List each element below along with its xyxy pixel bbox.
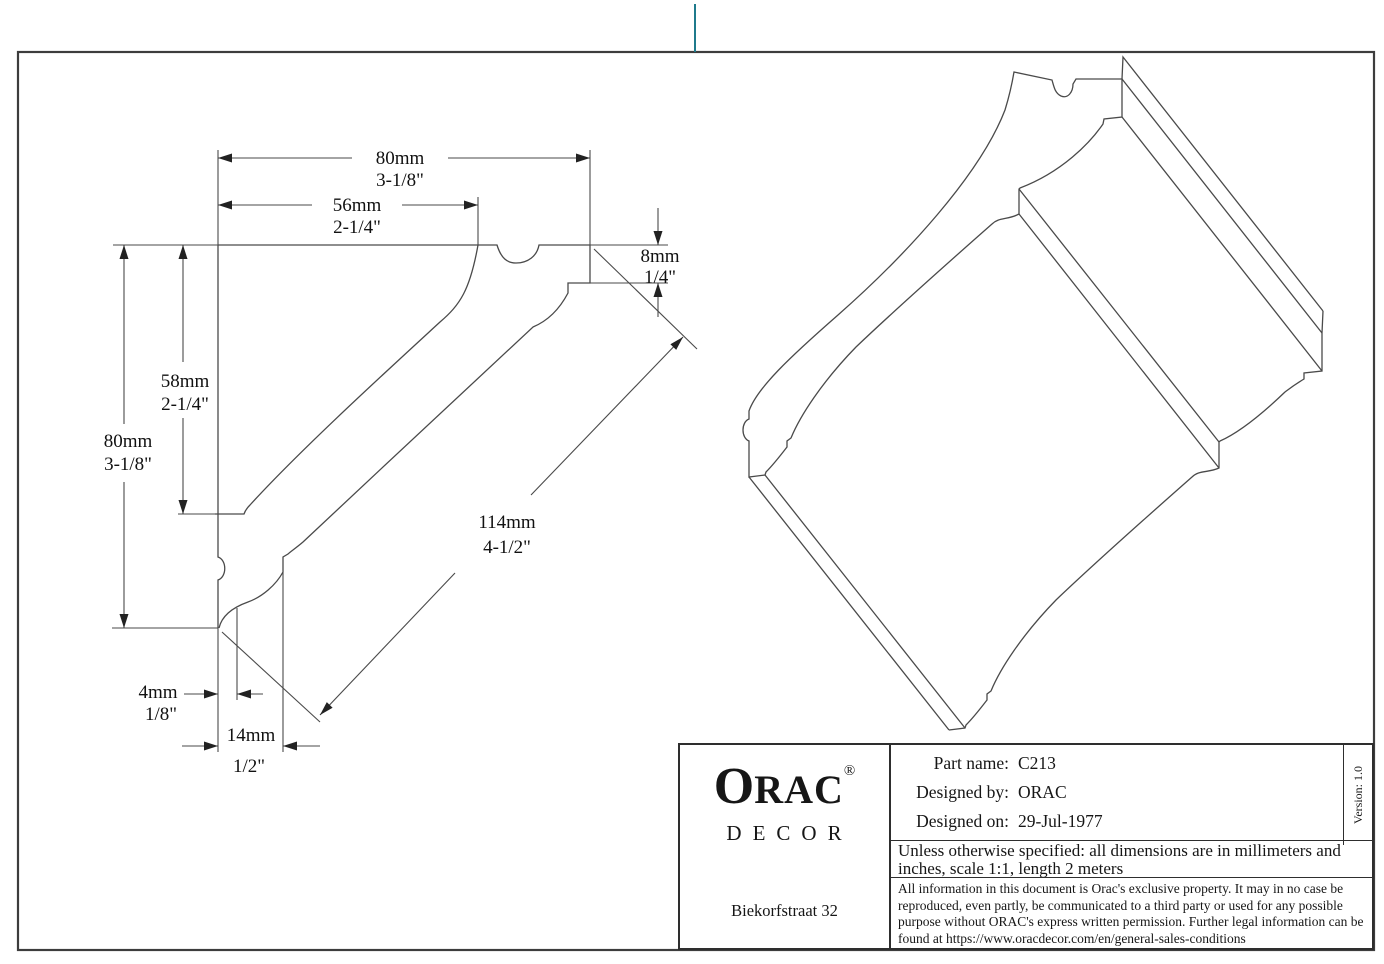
dimension-labels: 80mm 3-1/8" 56mm 2-1/4" 8mm 1/4" 58mm 2-… bbox=[104, 148, 680, 777]
dim-right-step-in: 1/4" bbox=[644, 267, 676, 288]
field-label: Designed by: bbox=[891, 782, 1009, 802]
dim-diagonal-face-mm: 114mm bbox=[478, 512, 536, 533]
drawing-page: 80mm 3-1/8" 56mm 2-1/4" 8mm 1/4" 58mm 2-… bbox=[0, 0, 1384, 964]
title-block-brand-cell: ORAC® DECOR Biekorfstraat 32 8400 Oosten… bbox=[680, 745, 891, 948]
iso-extrusion-edges bbox=[749, 57, 1323, 730]
spec-note: Unless otherwise specified: all dimensio… bbox=[891, 840, 1372, 877]
title-block: ORAC® DECOR Biekorfstraat 32 8400 Oosten… bbox=[678, 743, 1374, 950]
field-designed-on: Designed on: 29-Jul-1977 bbox=[891, 811, 1372, 831]
dim-top-width-in: 3-1/8" bbox=[376, 170, 424, 191]
version-label: Version: 1.0 bbox=[1351, 766, 1366, 824]
version-cell: Version: 1.0 bbox=[1343, 745, 1372, 845]
legal-note: All information in this document is Orac… bbox=[891, 877, 1372, 948]
dim-total-height-in: 3-1/8" bbox=[104, 454, 152, 475]
profile-section-view bbox=[215, 245, 590, 628]
orac-logo: ORAC® bbox=[714, 751, 856, 819]
dim-bottom-width-mm: 14mm bbox=[227, 725, 276, 746]
dim-top-flat-in: 2-1/4" bbox=[333, 217, 381, 238]
dim-top-width-mm: 80mm bbox=[376, 148, 425, 169]
field-value: C213 bbox=[1018, 753, 1056, 773]
orac-logo-subbrand: DECOR bbox=[726, 821, 852, 846]
address-line: Biekorfstraat 32 bbox=[699, 900, 869, 921]
iso-far-face bbox=[949, 311, 1323, 730]
dim-upper-height-in: 2-1/4" bbox=[161, 394, 209, 415]
company-address: Biekorfstraat 32 8400 Oostende - Belgium… bbox=[699, 858, 869, 964]
profile-outline bbox=[218, 245, 590, 628]
field-part-name: Part name: C213 bbox=[891, 753, 1372, 773]
part-info-fields: Part name: C213 Designed by: ORAC Design… bbox=[891, 745, 1372, 840]
field-label: Part name: bbox=[891, 753, 1009, 773]
field-label: Designed on: bbox=[891, 811, 1009, 831]
orac-logo-letter-o: O bbox=[714, 758, 754, 815]
dim-right-step-mm: 8mm bbox=[640, 246, 679, 267]
dim-wall-thickness-mm: 4mm bbox=[138, 682, 177, 703]
dimension-arrowheads bbox=[120, 154, 684, 751]
dim-upper-height-mm: 58mm bbox=[161, 371, 210, 392]
dim-diagonal-face-in: 4-1/2" bbox=[483, 537, 531, 558]
dimension-lines bbox=[112, 150, 697, 752]
profile-back-face bbox=[218, 245, 225, 628]
iso-near-face bbox=[743, 72, 1122, 477]
dim-wall-thickness-in: 1/8" bbox=[145, 704, 177, 725]
dim-total-height-mm: 80mm bbox=[104, 431, 153, 452]
dim-top-flat-mm: 56mm bbox=[333, 195, 382, 216]
title-block-info-cell: Part name: C213 Designed by: ORAC Design… bbox=[891, 745, 1372, 948]
field-value: ORAC bbox=[1018, 782, 1067, 802]
orac-logo-letters: RAC bbox=[754, 767, 844, 812]
registered-trademark-icon: ® bbox=[844, 763, 855, 779]
dim-bottom-width-in: 1/2" bbox=[233, 756, 265, 777]
field-designed-by: Designed by: ORAC bbox=[891, 782, 1372, 802]
field-value: 29-Jul-1977 bbox=[1018, 811, 1103, 831]
profile-cavity bbox=[215, 245, 478, 514]
isometric-view bbox=[743, 57, 1323, 730]
